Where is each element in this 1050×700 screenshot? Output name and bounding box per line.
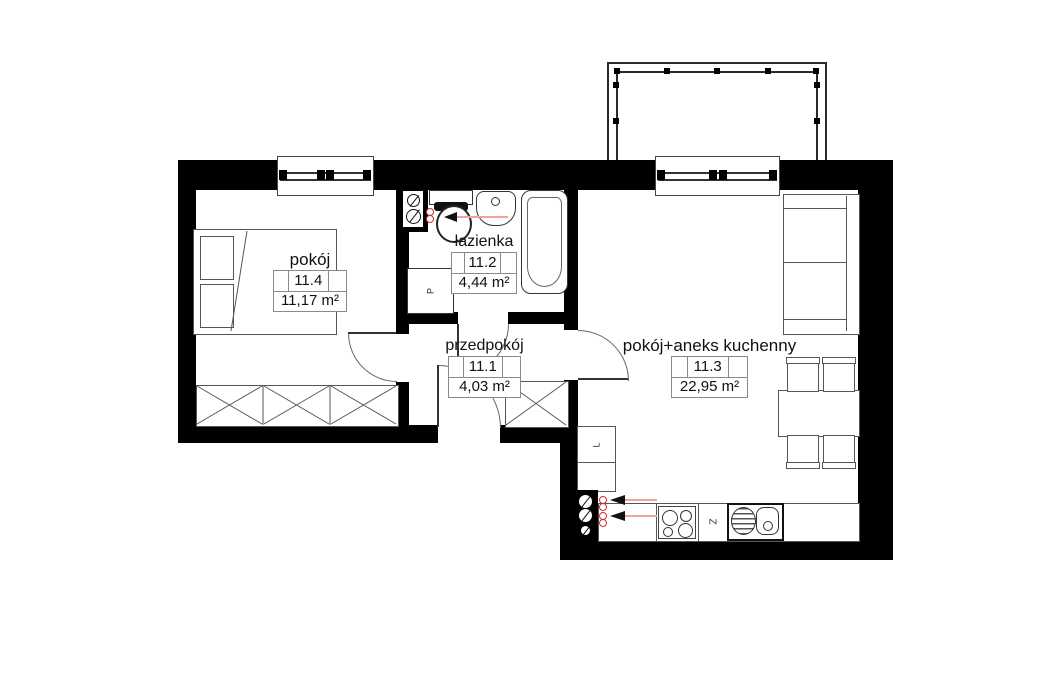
supply-line [457,216,508,218]
sink-drainer [731,507,756,535]
room-id: 11.1 [464,357,502,377]
supply-arrow-icon [444,212,457,222]
door-leaf-entrance [437,365,439,427]
balcony-tick [813,68,819,74]
room-area: 4,44 m² [451,274,517,294]
sofa-backrest-line [846,196,847,331]
meter-icon [579,509,592,522]
bed-pillow [200,284,234,328]
bed-pillow [200,236,234,280]
meter-box [576,490,598,540]
supply-line [625,499,657,501]
id-box-cell [502,357,520,377]
room-area: 11,17 m² [273,292,347,312]
fridge: L [577,426,616,464]
duct-shaft-inset [403,191,423,227]
room-name: pokój [290,251,331,268]
burner-icon [663,527,673,537]
window-mullion [719,170,727,180]
floor-plan: P L Z [0,0,1050,700]
room-id-box: 11.3 [671,356,748,378]
valve-icon [407,194,420,207]
room-id-box: 11.1 [448,356,521,378]
id-box-cell [449,357,464,377]
door-arc-livingroom [578,330,629,381]
sofa-seat-line [784,262,846,263]
meter-icon [579,495,592,508]
washbasin [476,191,516,226]
room-id-box: 11.2 [451,252,517,274]
window-mullion [363,170,371,180]
water-connection-icon [426,208,434,223]
room-label-bedroom: pokój 11.4 11,17 m² [273,251,347,312]
balcony-tick [613,82,619,88]
balcony-tick [664,68,670,74]
chair [787,435,819,464]
room-label-bathroom: łazienka 11.2 4,44 m² [451,233,517,294]
chair [823,435,855,464]
room-area: 22,95 m² [671,378,748,398]
supply-arrow-icon [610,495,625,505]
fridge-letter: L [579,427,615,464]
dining-table [778,390,860,437]
room-id: 11.4 [289,271,328,291]
chair-backrest [786,462,820,469]
room-name: przedpokój [445,337,523,354]
balcony-tick [613,118,619,124]
door-leaf-livingroom [578,378,628,380]
chair-backrest [822,462,856,469]
room-name: łazienka [455,233,514,250]
balcony-rail-inner [616,71,818,163]
id-box-cell [728,357,747,377]
window-livingroom [655,156,780,196]
counter-divider [656,504,657,541]
wardrobe-bedroom [196,385,399,427]
supply-line [625,515,657,517]
washing-machine-letter: P [409,269,453,314]
bathtub-basin [527,197,562,287]
stove [658,506,696,539]
wall-bottom-main [560,540,893,560]
faucet-icon [491,197,500,206]
window-mullion [317,170,325,180]
room-label-hallway: przedpokój 11.1 4,03 m² [448,337,521,398]
id-box-cell [274,271,289,291]
id-box-cell [452,253,465,273]
dishwasher-letter: Z [694,507,731,537]
kitchen-sink [727,503,784,541]
id-box-cell [672,357,688,377]
window-mullion [769,170,777,180]
balcony-tick [814,82,820,88]
meter-icon [581,526,590,535]
window-mullion [326,170,334,180]
sofa-armrest-line [784,319,846,320]
chair [823,363,855,392]
balcony-tick [765,68,771,74]
wall-bath-bottom-right [508,312,578,324]
wall-bottom-left [178,425,438,443]
valve-icon [406,209,421,224]
room-label-livingroom: pokój+aneks kuchenny 11.3 22,95 m² [671,337,748,398]
window-bedroom [277,156,374,196]
window-mullion [279,170,287,180]
balcony-tick [814,118,820,124]
balcony-tick [714,68,720,74]
burner-icon [680,510,692,522]
room-id-box: 11.4 [273,270,347,292]
id-box-cell [500,253,517,273]
chair [787,363,819,392]
sink-drain-icon [763,521,773,531]
wall-right [858,160,893,560]
burner-icon [662,510,678,526]
window-mullion [709,170,717,180]
gas-connection-icon [599,512,607,527]
window-mullion [657,170,665,180]
room-area: 4,03 m² [448,378,521,398]
door-arc-bedroom [348,333,397,382]
id-box-cell [328,271,347,291]
sofa-armrest-line [784,208,846,209]
sofa [783,194,860,335]
room-id: 11.3 [688,357,728,377]
burner-icon [678,523,693,538]
washing-machine: P [407,268,454,314]
supply-arrow-icon [610,511,625,521]
gas-connection-icon [599,496,607,511]
room-name: pokój+aneks kuchenny [623,337,796,354]
balcony-tick [614,68,620,74]
door-leaf-bedroom [348,332,396,334]
room-id: 11.2 [465,253,499,273]
window-glazing [658,172,777,181]
kitchen-cabinet [577,462,616,492]
dishwasher-letter-wrap: Z [697,503,727,540]
